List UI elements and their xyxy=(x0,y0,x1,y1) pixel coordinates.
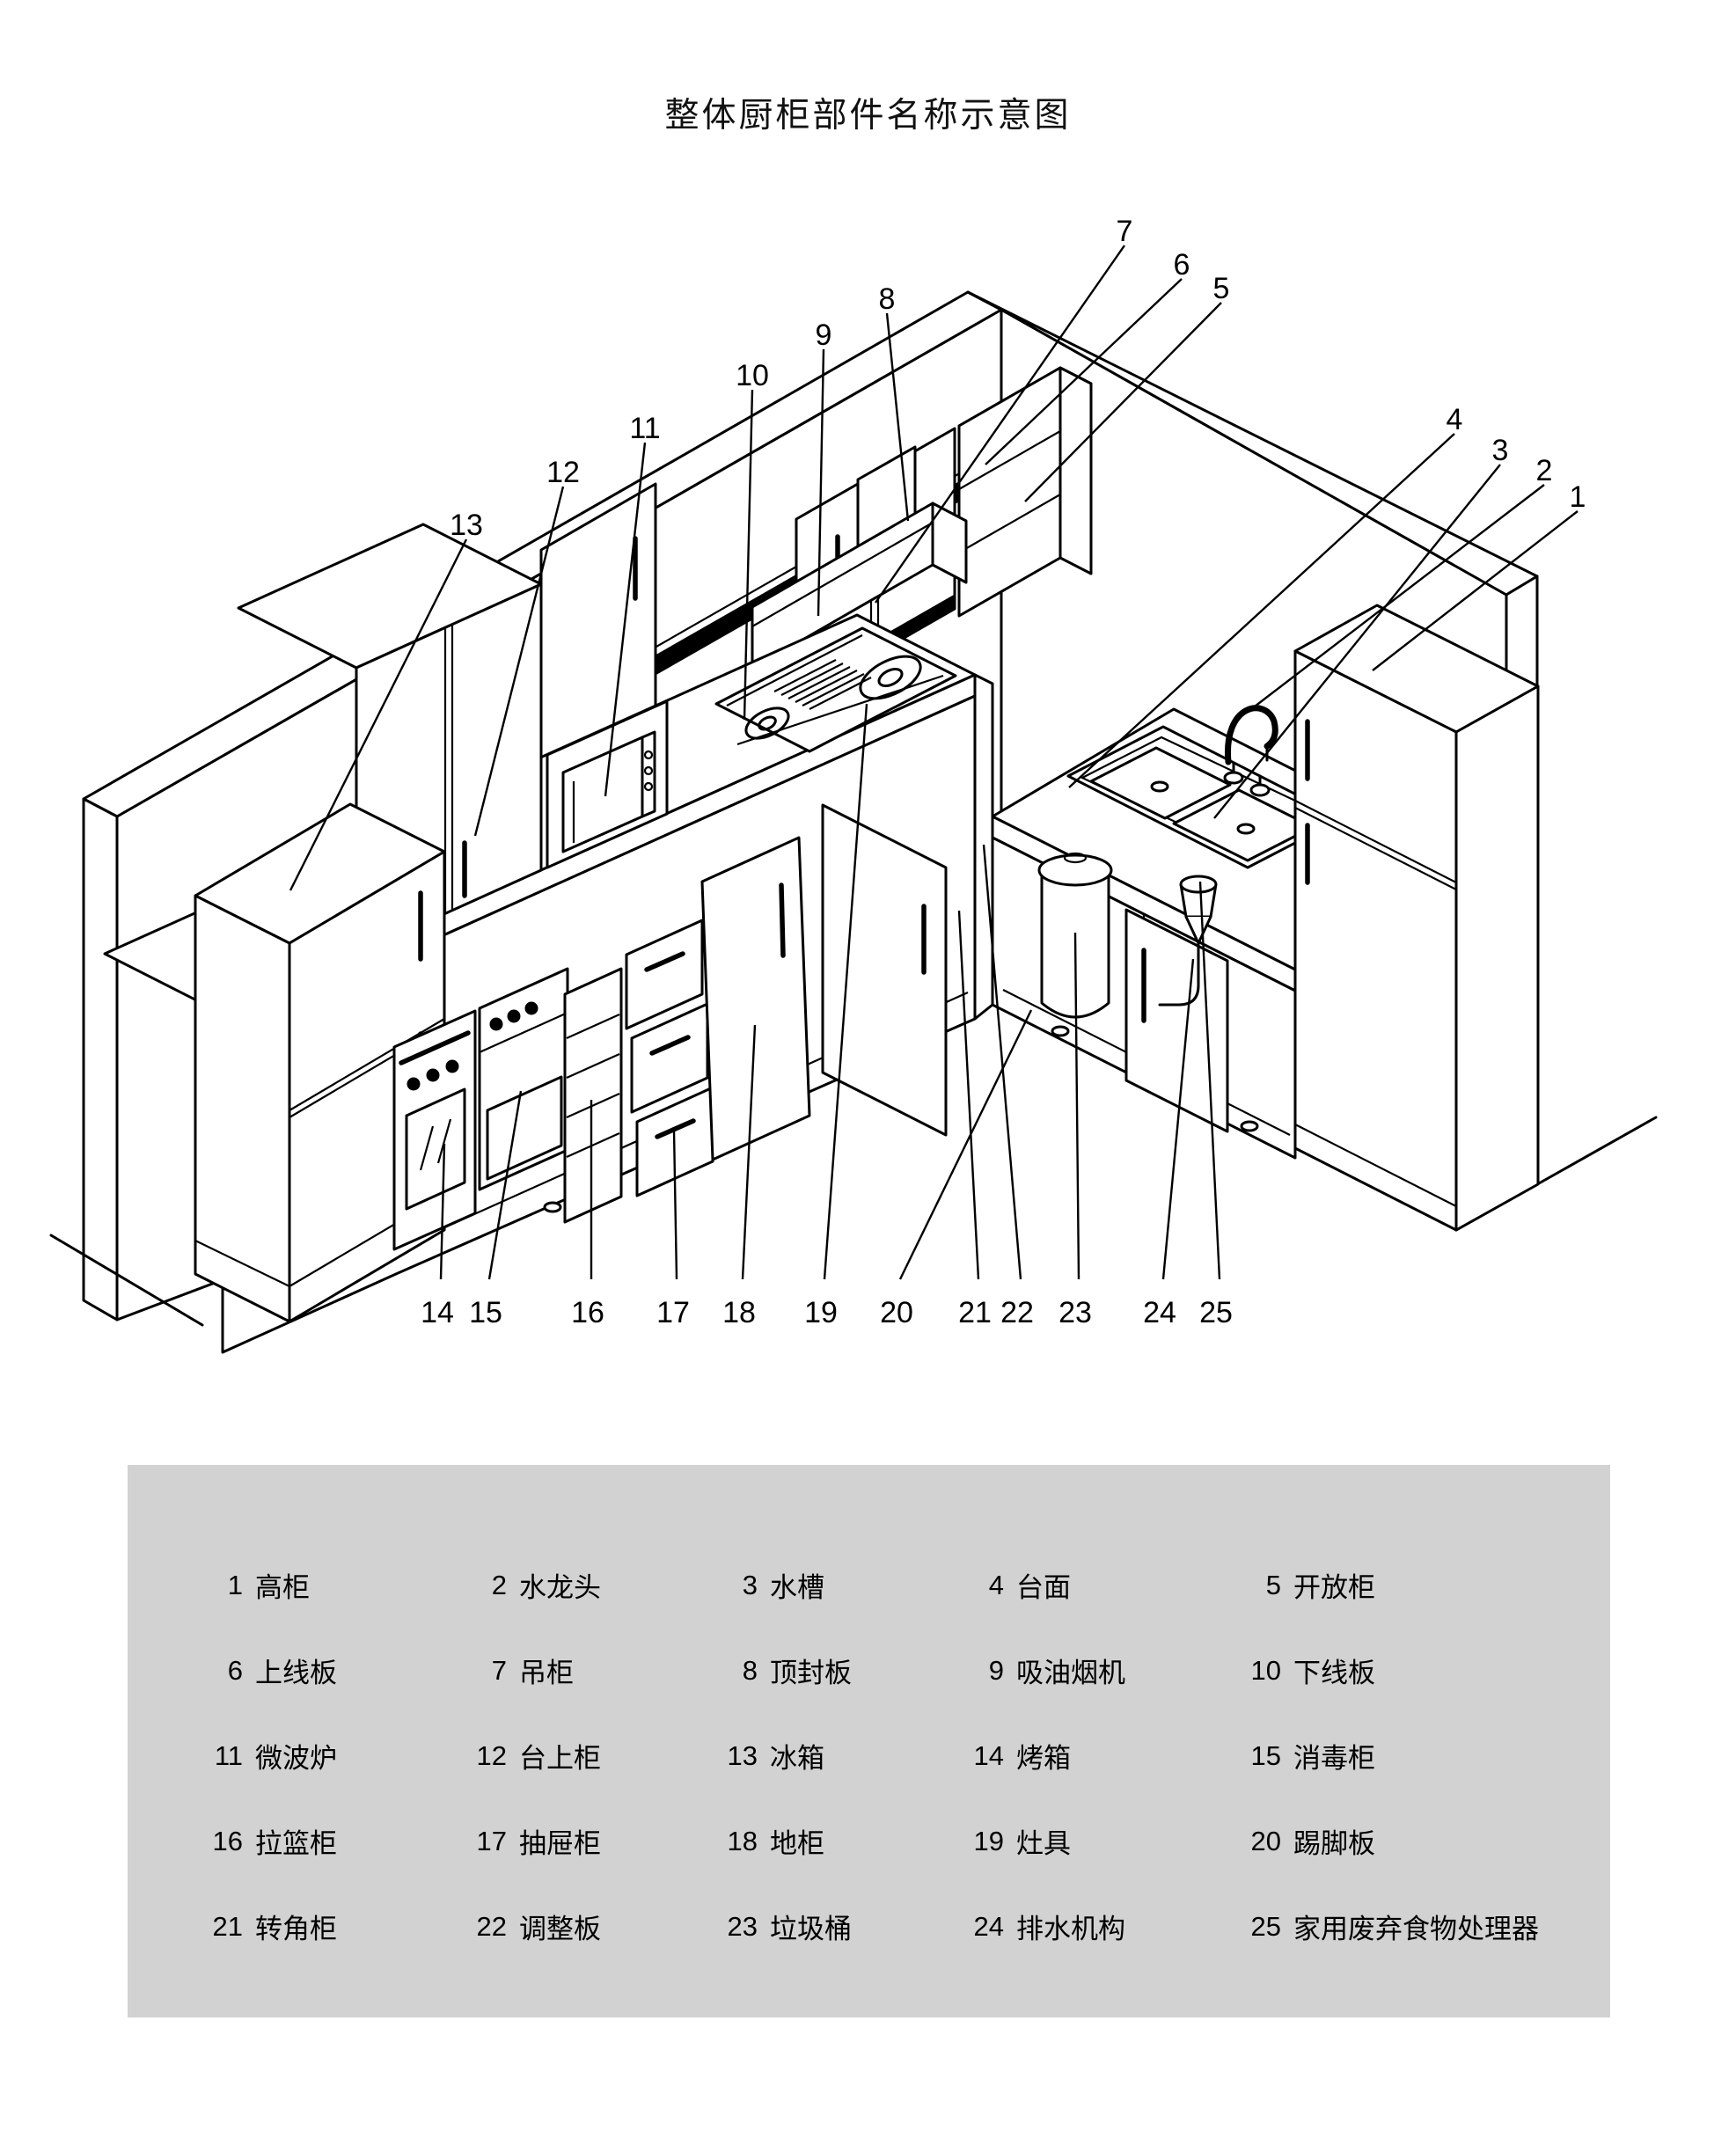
legend-item-number: 6 xyxy=(202,1655,243,1687)
legend-item-name: 台上柜 xyxy=(519,1736,601,1776)
legend-item-number: 19 xyxy=(963,1826,1004,1857)
callout-number-2-水龙头: 2 xyxy=(1536,454,1553,487)
callout-number-4-台面: 4 xyxy=(1447,403,1463,436)
legend-item-6: 6上线板 xyxy=(202,1651,466,1690)
legend-item-2: 2水龙头 xyxy=(466,1565,717,1605)
legend-item-name: 抽屉柜 xyxy=(519,1821,601,1861)
legend-item-number: 15 xyxy=(1241,1740,1281,1772)
callout-number-19-灶具: 19 xyxy=(804,1296,838,1329)
legend-item-19: 19灶具 xyxy=(963,1821,1241,1861)
legend-item-name: 灶具 xyxy=(1016,1821,1071,1861)
legend-item-3: 3水槽 xyxy=(717,1565,963,1605)
legend-item-name: 转角柜 xyxy=(255,1907,337,1946)
legend-item-number: 16 xyxy=(202,1826,243,1857)
callout-number-18-地柜: 18 xyxy=(722,1296,756,1329)
callout-number-9-吸油烟机: 9 xyxy=(816,319,832,352)
legend-item-name: 上线板 xyxy=(255,1651,337,1690)
callout-number-14-烤箱: 14 xyxy=(421,1296,454,1329)
callout-number-24-排水机构: 24 xyxy=(1143,1296,1176,1329)
legend-item-18: 18地柜 xyxy=(717,1821,963,1861)
callout-number-17-抽屉柜: 17 xyxy=(656,1296,690,1329)
legend-item-name: 调整板 xyxy=(519,1907,601,1946)
legend-item-number: 14 xyxy=(963,1740,1004,1772)
legend-item-number: 21 xyxy=(202,1911,243,1943)
legend-item-name: 台面 xyxy=(1016,1565,1071,1605)
legend-item-name: 开放柜 xyxy=(1293,1565,1375,1605)
legend-item-number: 13 xyxy=(717,1740,758,1772)
legend-item-20: 20踢脚板 xyxy=(1241,1821,1610,1861)
legend-item-name: 垃圾桶 xyxy=(770,1907,852,1946)
tall-cabinet xyxy=(1295,605,1538,1230)
legend-item-number: 25 xyxy=(1241,1911,1281,1943)
legend-item-15: 15消毒柜 xyxy=(1241,1736,1610,1776)
base-cabinet-open-door xyxy=(702,838,809,1160)
legend-item-number: 2 xyxy=(466,1570,507,1601)
disinfection-cabinet xyxy=(480,969,568,1190)
legend-item-number: 22 xyxy=(466,1911,507,1943)
legend-item-5: 5开放柜 xyxy=(1241,1565,1610,1605)
legend-item-number: 7 xyxy=(466,1655,507,1687)
legend-item-23: 23垃圾桶 xyxy=(717,1907,963,1946)
legend-item-17: 17抽屉柜 xyxy=(466,1821,717,1861)
legend-item-number: 8 xyxy=(717,1655,758,1687)
legend-item-13: 13冰箱 xyxy=(717,1736,963,1776)
legend-item-7: 7吊柜 xyxy=(466,1651,717,1690)
legend-item-22: 22调整板 xyxy=(466,1907,717,1946)
page: 整体厨柜部件名称示意图 xyxy=(0,0,1736,2138)
legend-item-25: 25家用废弃食物处理器 xyxy=(1241,1907,1610,1946)
legend-item-number: 11 xyxy=(202,1740,243,1772)
callout-number-12-台上柜: 12 xyxy=(546,456,580,489)
legend-item-name: 顶封板 xyxy=(770,1651,852,1690)
callout-number-3-水槽: 3 xyxy=(1492,434,1509,467)
pullout-basket-cabinet xyxy=(565,969,621,1222)
callout-number-6-上线板: 6 xyxy=(1174,248,1190,282)
legend-item-name: 踢脚板 xyxy=(1293,1821,1375,1861)
callout-number-21-转角柜: 21 xyxy=(958,1296,992,1329)
callout-number-22-调整板: 22 xyxy=(1000,1296,1034,1329)
legend-item-name: 水槽 xyxy=(770,1565,824,1605)
legend-item-name: 冰箱 xyxy=(770,1736,824,1776)
page-title: 整体厨柜部件名称示意图 xyxy=(0,88,1736,137)
callout-number-20-踢脚板: 20 xyxy=(880,1296,913,1329)
callout-number-13-冰箱: 13 xyxy=(450,509,483,542)
oven xyxy=(394,1011,475,1249)
legend-item-number: 3 xyxy=(717,1570,758,1601)
callout-number-11-微波炉: 11 xyxy=(629,412,660,445)
callout-number-15-消毒柜: 15 xyxy=(469,1296,502,1329)
legend-box: 1高柜2水龙头3水槽4台面5开放柜6上线板7吊柜8顶封板9吸油烟机10下线板11… xyxy=(128,1465,1610,2017)
legend-item-number: 23 xyxy=(717,1911,758,1943)
legend-item-number: 1 xyxy=(202,1570,243,1601)
legend-item-12: 12台上柜 xyxy=(466,1736,717,1776)
legend-item-name: 高柜 xyxy=(255,1565,310,1605)
legend-item-name: 拉篮柜 xyxy=(255,1821,337,1861)
legend-item-number: 12 xyxy=(466,1740,507,1772)
legend-item-8: 8顶封板 xyxy=(717,1651,963,1690)
legend-item-name: 烤箱 xyxy=(1016,1736,1071,1776)
legend-item-name: 地柜 xyxy=(770,1821,824,1861)
callout-number-10-下线板: 10 xyxy=(736,359,769,392)
legend-item-number: 20 xyxy=(1241,1826,1281,1857)
legend-item-21: 21转角柜 xyxy=(202,1907,466,1946)
legend-item-number: 9 xyxy=(963,1655,1004,1687)
legend-item-9: 9吸油烟机 xyxy=(963,1651,1241,1690)
legend-item-name: 微波炉 xyxy=(255,1736,337,1776)
callout-number-25-家用废弃食物处理器: 25 xyxy=(1199,1296,1233,1329)
legend-item-16: 16拉篮柜 xyxy=(202,1821,466,1861)
legend-item-11: 11微波炉 xyxy=(202,1736,466,1776)
legend-item-name: 消毒柜 xyxy=(1293,1736,1375,1776)
legend-item-name: 水龙头 xyxy=(519,1565,601,1605)
legend-item-number: 4 xyxy=(963,1570,1004,1601)
legend-item-number: 10 xyxy=(1241,1655,1281,1687)
legend-item-number: 17 xyxy=(466,1826,507,1857)
legend-item-name: 排水机构 xyxy=(1016,1907,1125,1946)
legend-item-name: 下线板 xyxy=(1293,1651,1375,1690)
legend-item-10: 10下线板 xyxy=(1241,1651,1610,1690)
legend-item-number: 24 xyxy=(963,1911,1004,1943)
callout-number-8-顶封板: 8 xyxy=(879,282,896,316)
legend-item-name: 家用废弃食物处理器 xyxy=(1293,1907,1539,1946)
callout-number-7-吊柜: 7 xyxy=(1117,215,1133,248)
callout-number-23-垃圾桶: 23 xyxy=(1058,1296,1092,1329)
drawer-cabinet xyxy=(626,920,713,1196)
kitchen-diagram: 1234567891011121314151617181920212223242… xyxy=(0,132,1736,1505)
legend-item-number: 5 xyxy=(1241,1570,1281,1601)
legend-item-24: 24排水机构 xyxy=(963,1907,1241,1946)
legend-item-number: 18 xyxy=(717,1826,758,1857)
legend-item-14: 14烤箱 xyxy=(963,1736,1241,1776)
legend-item-name: 吸油烟机 xyxy=(1016,1651,1125,1690)
legend-item-name: 吊柜 xyxy=(519,1651,574,1690)
callout-number-5-开放柜: 5 xyxy=(1213,272,1230,305)
callout-number-16-拉篮柜: 16 xyxy=(571,1296,604,1329)
legend-item-1: 1高柜 xyxy=(202,1565,466,1605)
callout-number-1-高柜: 1 xyxy=(1570,480,1586,514)
legend-item-4: 4台面 xyxy=(963,1565,1241,1605)
